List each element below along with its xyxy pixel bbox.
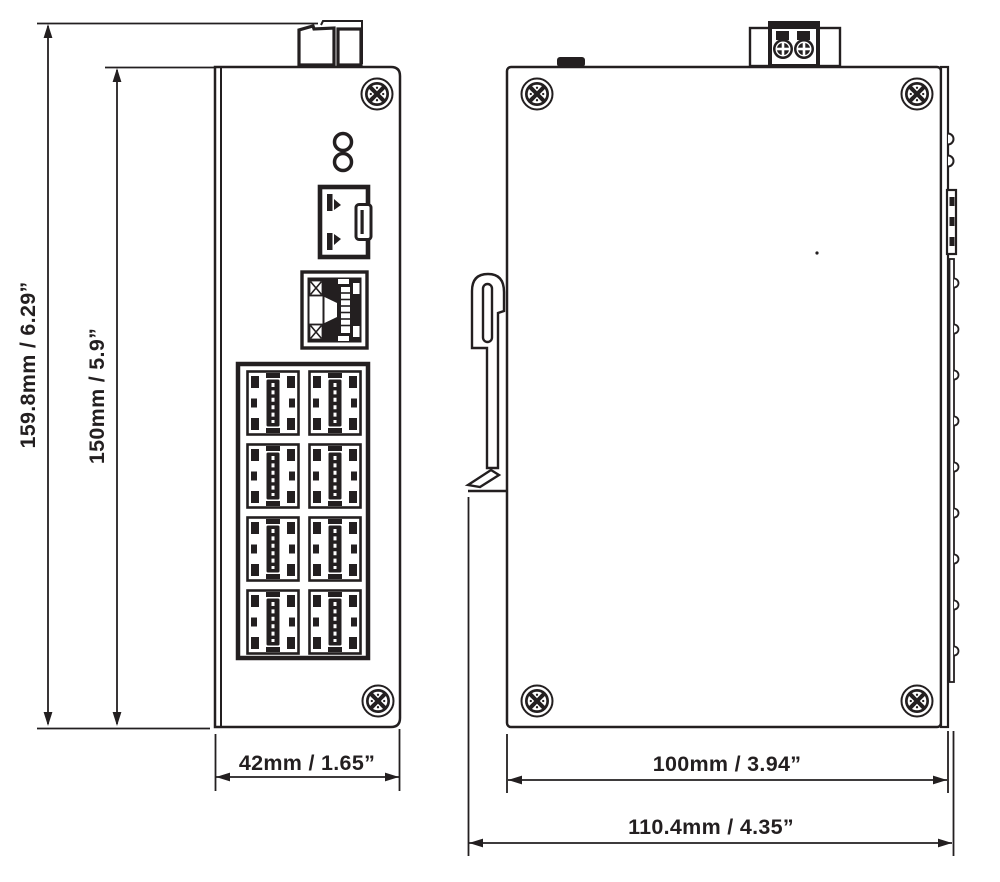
side-front-bezel [941, 67, 948, 727]
dimension-arrow-icon [44, 24, 53, 38]
dimension-drawing: 159.8mm / 6.29” 150mm / 5.9” 42mm / 1.65… [0, 0, 1000, 882]
rj45-port-grid [238, 364, 368, 658]
rj45-port [248, 518, 299, 581]
dimension-arrow-icon [44, 712, 53, 726]
dimension-label-depth-overall: 110.4mm / 4.35” [628, 815, 794, 839]
rj45-port [310, 372, 361, 435]
sfp-port [320, 187, 371, 257]
rj45-port [310, 445, 361, 508]
rj45-port [248, 445, 299, 508]
dimension-arrow-icon [938, 839, 952, 848]
led-indicator-icon [335, 154, 352, 171]
rj45-port [310, 591, 361, 654]
dimension-arrow-icon [216, 773, 230, 782]
dimension-label-height-overall: 159.8mm / 6.29” [16, 281, 40, 448]
phillips-screw-icon [902, 686, 933, 717]
top-tab-icon [557, 57, 585, 67]
rj45-port [248, 591, 299, 654]
dimension-arrow-icon [469, 839, 483, 848]
terminal-screw-icon [794, 39, 814, 59]
dimension-label-depth-body: 100mm / 3.94” [653, 752, 802, 776]
phillips-screw-icon [522, 686, 553, 717]
side-body [507, 67, 941, 727]
dimension-arrow-icon [113, 68, 122, 82]
dimension-arrow-icon [933, 776, 947, 785]
phillips-screw-icon [363, 686, 394, 717]
dimension-arrow-icon [385, 773, 399, 782]
rj45-port [248, 372, 299, 435]
dimension-label-height-body: 150mm / 5.9” [85, 328, 109, 464]
terminal-block [750, 21, 840, 66]
rj45-port [310, 518, 361, 581]
din-rail-clip [468, 274, 506, 491]
pinhole-dot [815, 251, 818, 254]
led-indicator-icon [335, 134, 352, 151]
phillips-screw-icon [902, 79, 933, 110]
side-view [468, 21, 959, 727]
phillips-screw-icon [522, 79, 553, 110]
rj45-port [302, 272, 367, 348]
dimension-drawing-page: 159.8mm / 6.29” 150mm / 5.9” 42mm / 1.65… [0, 0, 1000, 882]
terminal-screw-icon [773, 39, 793, 59]
dimension-label-width: 42mm / 1.65” [239, 751, 375, 775]
din-clip-tab-icon [299, 21, 362, 65]
front-view [215, 21, 400, 727]
side-port-profile [947, 134, 959, 683]
phillips-screw-icon [362, 79, 393, 110]
dimension-arrow-icon [113, 712, 122, 726]
dimension-arrow-icon [508, 776, 522, 785]
